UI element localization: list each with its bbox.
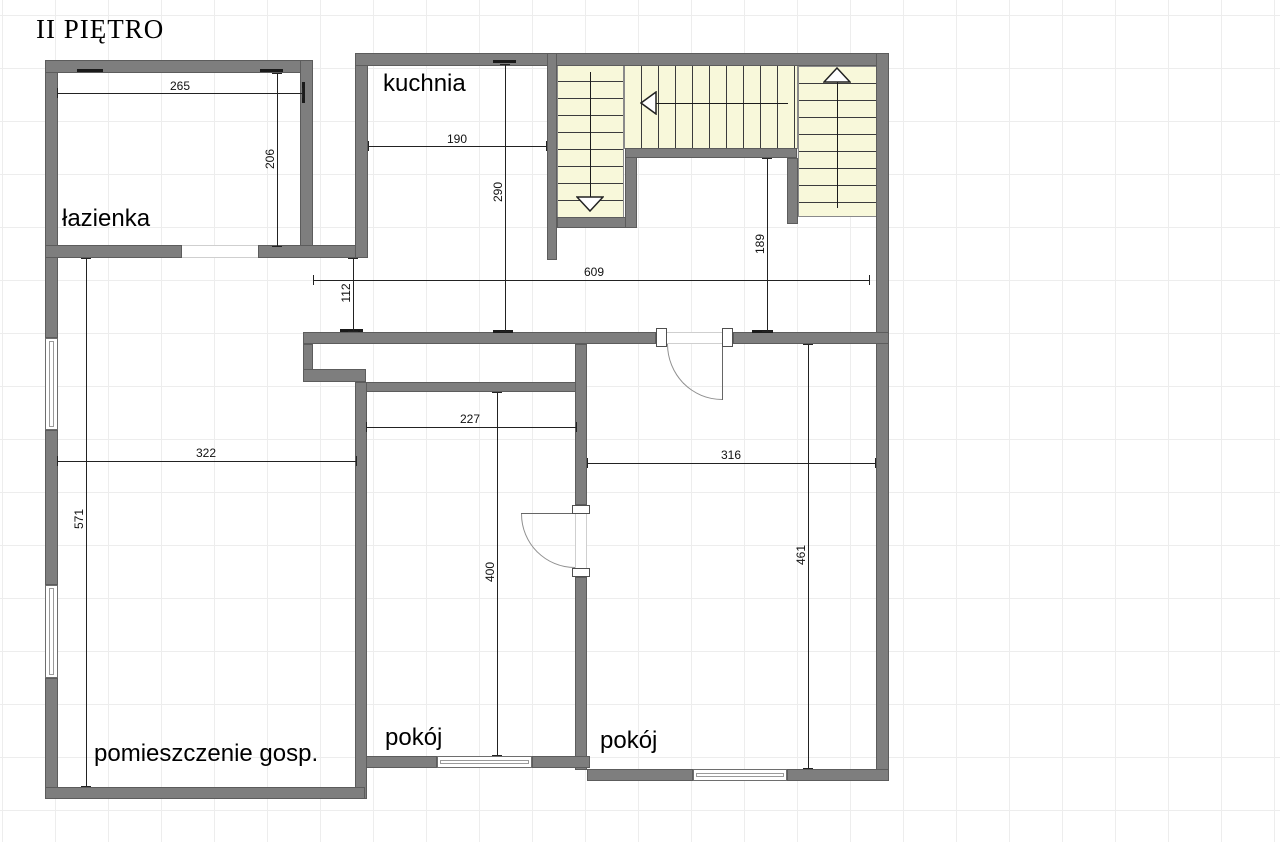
window-glass xyxy=(49,341,54,427)
dim-end xyxy=(57,88,58,98)
room-label-room2: pokój xyxy=(600,727,657,755)
wall-stairwell-pocket-left xyxy=(625,148,637,228)
stairs-down-arrow-icon xyxy=(576,196,604,212)
room-label-kitchen: kuchnia xyxy=(383,70,466,98)
dim-end xyxy=(313,275,314,285)
wall-under-top-flight xyxy=(625,148,797,158)
dim-label-room2-depth: 461 xyxy=(794,535,808,575)
dim-end xyxy=(762,158,772,159)
dim-label-kitchen-depth: 290 xyxy=(491,172,505,212)
dim-label-room1-width: 227 xyxy=(440,412,500,426)
dim-line-400 xyxy=(497,392,498,756)
dim-end xyxy=(492,392,502,393)
dim-end xyxy=(803,344,813,345)
room-label-room1: pokój xyxy=(385,724,442,752)
dim-end xyxy=(368,141,369,151)
wall-outer-left-c xyxy=(45,678,58,797)
wall-room1-bottom-a xyxy=(366,756,437,768)
wall-room1-bottom-b xyxy=(532,756,590,768)
stairs-left-arrow-icon xyxy=(640,91,657,115)
wall-hall-bottom-left xyxy=(303,332,656,344)
wall-kitchen-right xyxy=(547,53,557,260)
dim-line-227 xyxy=(366,427,577,428)
wall-stairwell-pocket-right xyxy=(787,158,798,224)
dim-line-206 xyxy=(277,73,278,247)
dim-end xyxy=(272,73,282,74)
dim-end xyxy=(356,456,357,466)
wall-room2-bottom-b xyxy=(787,769,889,781)
window-room1 xyxy=(437,756,532,768)
dim-end xyxy=(803,768,813,769)
dim-end xyxy=(366,422,367,432)
dim-line-322 xyxy=(57,461,357,462)
wall-room2-bottom-a xyxy=(587,769,693,781)
stairs-down-line xyxy=(590,72,591,198)
door-jamb xyxy=(722,328,733,347)
wall-kitchen-left xyxy=(355,53,368,258)
wall-hall-bottom-right xyxy=(733,332,889,344)
wall-outer-right xyxy=(876,53,889,780)
dim-end xyxy=(587,458,588,468)
dim-end xyxy=(348,258,358,259)
opening-hall-door xyxy=(667,332,722,344)
stairs-left-line xyxy=(655,103,788,104)
dimension-tick xyxy=(260,69,283,72)
dim-end xyxy=(81,786,91,787)
window-left-upper xyxy=(45,338,58,430)
opening-bathroom xyxy=(182,245,258,258)
wall-bathroom-bottom-a xyxy=(45,245,182,258)
dim-line-112 xyxy=(353,258,354,332)
dim-line-316 xyxy=(587,463,876,464)
window-room2 xyxy=(693,769,787,781)
dim-line-609 xyxy=(313,280,870,281)
floor-plan: II PIĘTRO xyxy=(0,0,1280,842)
dim-end xyxy=(302,88,303,98)
stairs-up-arrow-icon xyxy=(823,67,851,83)
dim-label-utility-depth: 571 xyxy=(72,499,86,539)
dim-label-hall-nook-depth: 112 xyxy=(339,273,353,313)
room-label-utility: pomieszczenie gosp. xyxy=(94,740,318,768)
dim-label-utility-width: 322 xyxy=(176,446,236,460)
door-jamb xyxy=(572,568,590,577)
wall-room-divider-lower xyxy=(575,577,587,770)
dim-line-190 xyxy=(368,146,547,147)
page-title: II PIĘTRO xyxy=(36,14,164,45)
stairs-up-line xyxy=(837,82,838,208)
dim-line-571 xyxy=(86,258,87,787)
dim-label-bathroom-depth: 206 xyxy=(263,139,277,179)
door-jamb xyxy=(656,328,667,347)
window-left-lower xyxy=(45,585,58,678)
dim-end xyxy=(81,258,91,259)
wall-room1-top xyxy=(366,382,587,392)
door-swing-hall xyxy=(667,344,722,400)
wall-utility-right xyxy=(355,382,367,799)
dim-end xyxy=(869,275,870,285)
dim-end xyxy=(272,246,282,247)
wall-outer-top xyxy=(355,53,889,66)
dim-end xyxy=(875,458,876,468)
dim-end xyxy=(500,64,510,65)
wall-nook-vertical xyxy=(303,344,313,371)
opening-room-door xyxy=(575,514,587,568)
dim-label-room1-depth: 400 xyxy=(483,552,497,592)
dim-line-265 xyxy=(57,93,303,94)
dim-line-290 xyxy=(505,64,506,332)
door-swing-room xyxy=(521,514,575,568)
window-glass xyxy=(696,773,784,777)
room-label-bathroom: łazienka xyxy=(62,205,150,233)
dim-line-189 xyxy=(767,158,768,332)
dim-end xyxy=(348,331,358,332)
dim-end xyxy=(576,422,577,432)
door-jamb xyxy=(572,505,590,514)
dim-label-kitchen-width: 190 xyxy=(427,132,487,146)
dim-end xyxy=(492,755,502,756)
dim-end xyxy=(500,331,510,332)
dimension-tick xyxy=(493,60,516,63)
dim-label-room2-width: 316 xyxy=(701,448,761,462)
dim-label-stairwell-depth: 189 xyxy=(753,224,767,264)
dim-end xyxy=(546,141,547,151)
window-glass xyxy=(49,588,54,675)
dim-label-hall-width: 609 xyxy=(564,265,624,279)
dim-line-461 xyxy=(808,344,809,769)
wall-nook-step xyxy=(303,369,366,382)
door-leaf-hall xyxy=(722,344,723,400)
window-glass xyxy=(440,760,529,764)
wall-utility-bottom xyxy=(45,787,365,799)
wall-outer-left-a xyxy=(45,60,58,338)
dim-end xyxy=(57,456,58,466)
dimension-tick xyxy=(77,69,103,72)
wall-outer-left-b xyxy=(45,430,58,585)
dim-label-bathroom-width: 265 xyxy=(150,79,210,93)
dim-end xyxy=(762,331,772,332)
